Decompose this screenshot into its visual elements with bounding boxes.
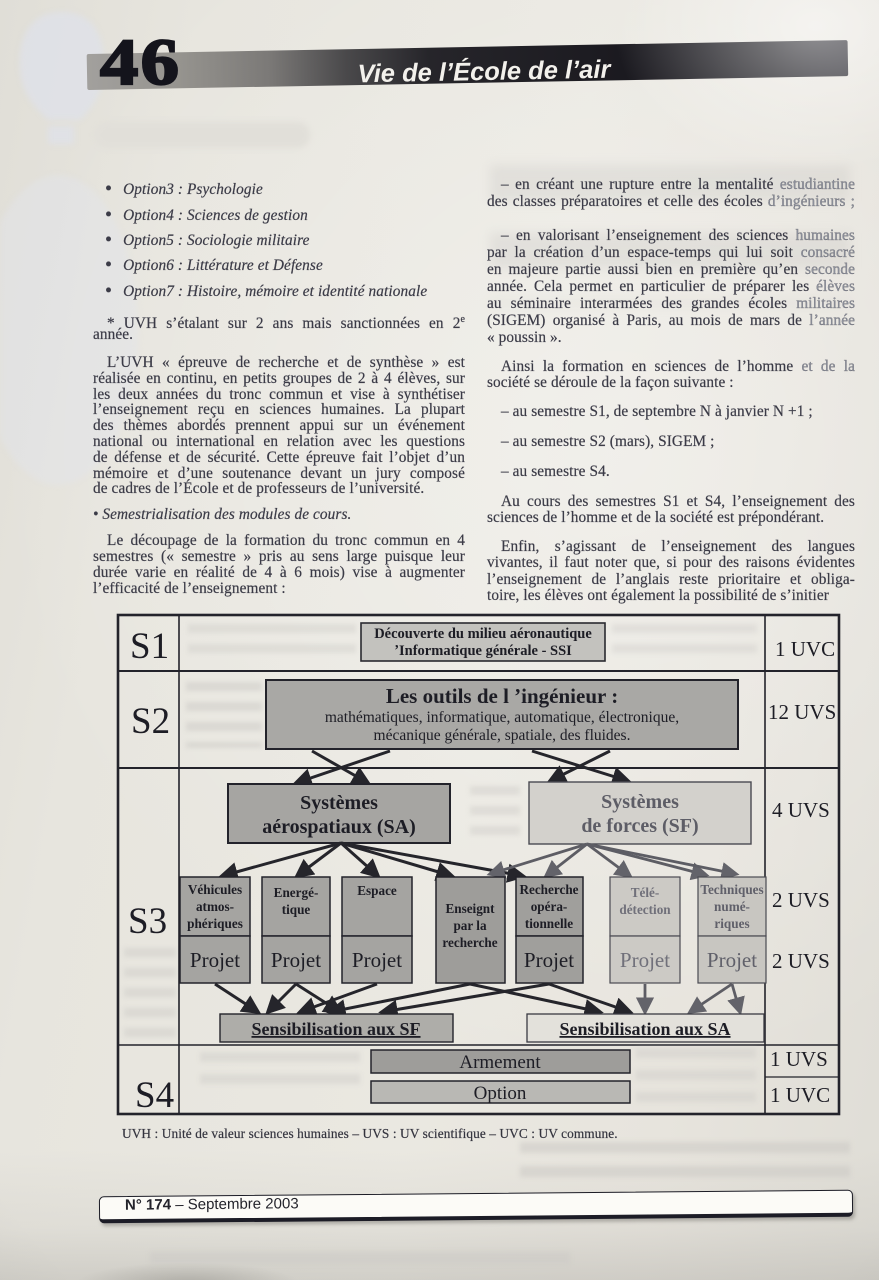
svg-text:Recherche: Recherche xyxy=(519,882,578,897)
svg-text:Enseignt: Enseignt xyxy=(445,901,495,916)
svg-text:S2: S2 xyxy=(131,701,170,742)
svg-text:Systèmes: Systèmes xyxy=(300,792,378,814)
svg-text:détection: détection xyxy=(619,902,671,917)
svg-text:Les outils de l ’ingénieur :: Les outils de l ’ingénieur : xyxy=(386,684,618,708)
svg-text:Projet: Projet xyxy=(352,948,402,972)
svg-text:Découverte du milieu aéronauti: Découverte du milieu aéronautique xyxy=(374,626,592,642)
svg-text:Systèmes: Systèmes xyxy=(601,791,679,813)
svg-text:par la: par la xyxy=(453,918,487,933)
svg-text:ʼInformatique générale - SSI: ʼInformatique générale - SSI xyxy=(394,643,572,659)
svg-text:Projet: Projet xyxy=(190,948,240,972)
svg-text:recherche: recherche xyxy=(442,935,497,950)
svg-text:2 UVS: 2 UVS xyxy=(772,888,830,912)
svg-text:S1: S1 xyxy=(130,626,169,667)
svg-text:Espace: Espace xyxy=(357,883,397,898)
svg-text:1 UVC: 1 UVC xyxy=(770,1083,830,1107)
svg-text:riques: riques xyxy=(714,916,749,931)
svg-text:atmos-: atmos- xyxy=(196,899,234,914)
svg-text:Véhicules: Véhicules xyxy=(188,882,242,897)
svg-text:Projet: Projet xyxy=(524,948,574,972)
svg-text:Sensibilisation aux SF: Sensibilisation aux SF xyxy=(251,1019,420,1039)
svg-text:Projet: Projet xyxy=(271,948,321,972)
svg-text:tionnelle: tionnelle xyxy=(525,916,573,931)
svg-text:S3: S3 xyxy=(128,901,167,942)
svg-text:4 UVS: 4 UVS xyxy=(772,798,830,822)
svg-text:S4: S4 xyxy=(135,1075,174,1116)
svg-text:1 UVS: 1 UVS xyxy=(770,1047,828,1071)
svg-text:Projet: Projet xyxy=(707,948,757,972)
svg-text:phériques: phériques xyxy=(187,916,243,931)
svg-text:mathématiques, informatique, a: mathématiques, informatique, automatique… xyxy=(325,709,679,726)
svg-text:Télé-: Télé- xyxy=(631,885,660,900)
svg-text:Option: Option xyxy=(474,1083,527,1104)
svg-text:numé-: numé- xyxy=(714,899,750,914)
svg-text:de forces (SF): de forces (SF) xyxy=(581,815,698,837)
svg-text:Sensibilisation aux SA: Sensibilisation aux SA xyxy=(559,1019,730,1039)
svg-text:Energé-: Energé- xyxy=(274,885,319,900)
svg-text:Techniques: Techniques xyxy=(700,882,763,897)
svg-text:Projet: Projet xyxy=(620,948,670,972)
svg-text:2 UVS: 2 UVS xyxy=(772,949,830,973)
svg-text:mécanique générale, spatiale,: mécanique générale, spatiale, des fluide… xyxy=(374,727,631,744)
svg-text:12 UVS: 12 UVS xyxy=(768,700,836,724)
svg-text:Armement: Armement xyxy=(459,1052,541,1073)
svg-text:opéra-: opéra- xyxy=(531,899,568,914)
svg-text:1 UVC: 1 UVC xyxy=(775,637,835,661)
svg-text:aérospatiaux (SA): aérospatiaux (SA) xyxy=(262,816,416,838)
svg-text:tique: tique xyxy=(282,902,311,917)
